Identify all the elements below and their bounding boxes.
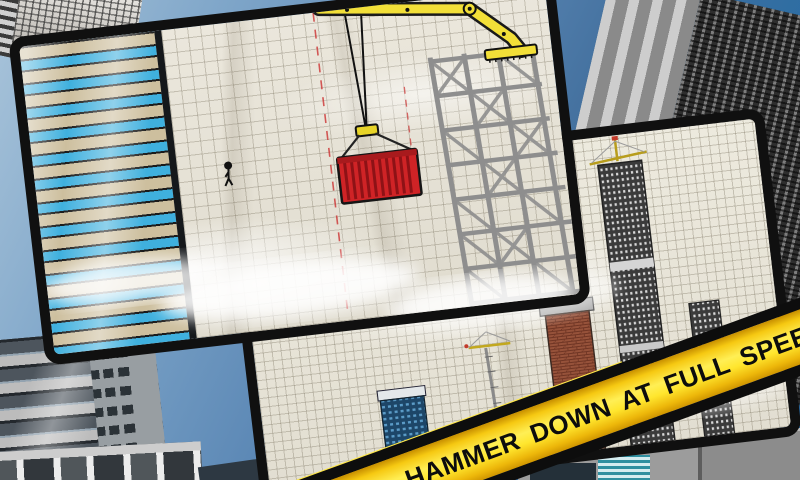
articulated-crane-arm [319, 0, 538, 82]
steel-truss-tower [428, 42, 580, 307]
spreader-bar [355, 124, 378, 136]
stickman-figure [223, 162, 234, 186]
game-promo-screenshot: HAMMER DOWN AT FULL SPEED [0, 0, 800, 480]
cloud [156, 247, 421, 333]
crane-foot [485, 44, 538, 60]
screenshot-card-crane-lift[interactable] [8, 0, 591, 366]
crane-cable [344, 7, 375, 128]
red-dashed-drop-line-short [404, 87, 411, 149]
red-cargo-container [337, 149, 422, 204]
rooftop-crane-icon [587, 133, 648, 165]
crane-lift-sprites [19, 0, 580, 355]
background-teal-glass-tower [598, 455, 650, 480]
